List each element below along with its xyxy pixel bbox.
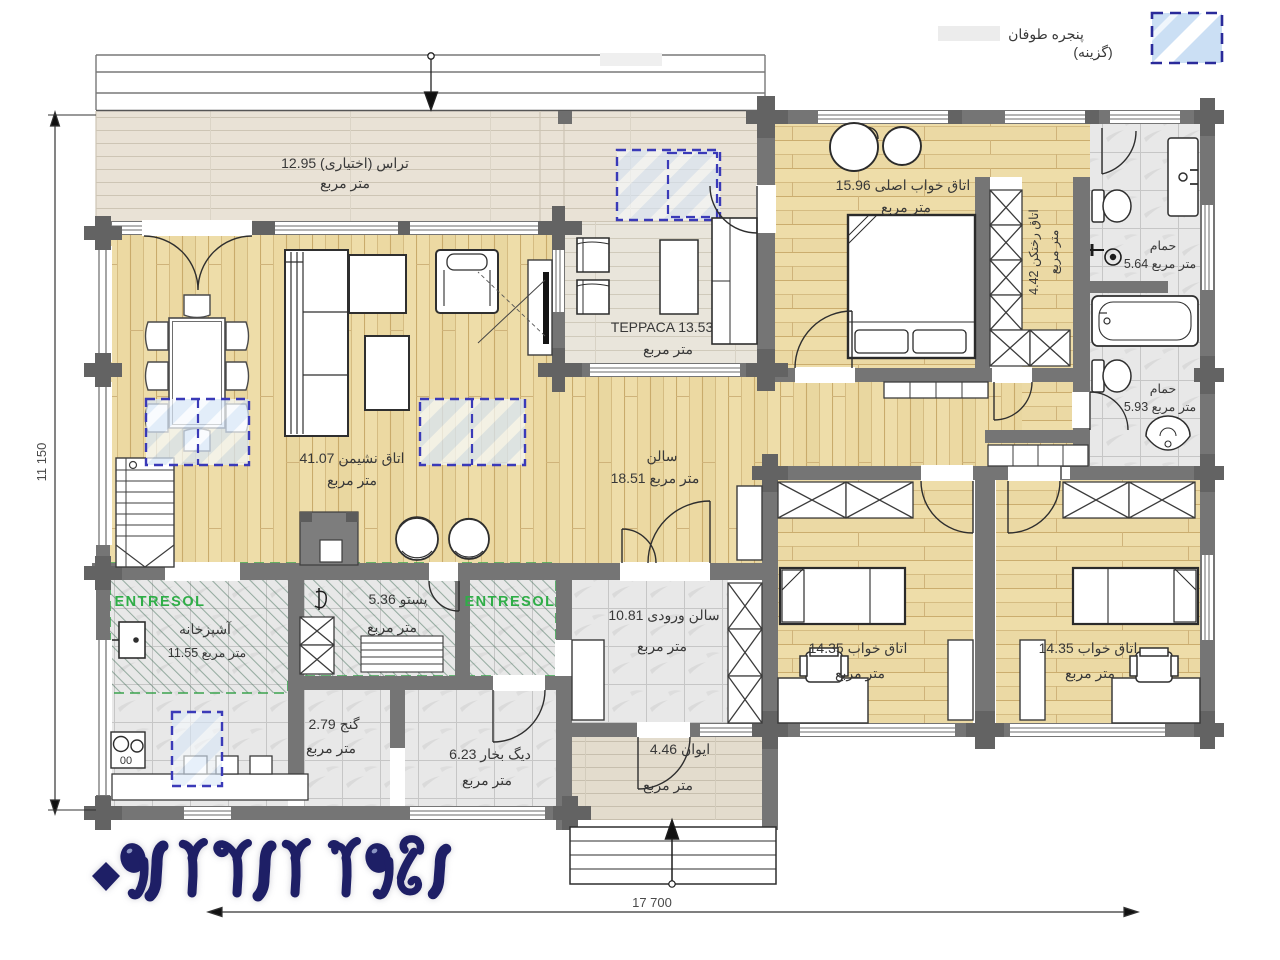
svg-text:(گزینه): (گزینه) — [1073, 44, 1112, 61]
svg-text:متر مربع: متر مربع — [1065, 665, 1115, 682]
svg-text:اتاق رختکن 4.42: اتاق رختکن 4.42 — [1027, 209, 1042, 295]
svg-text:ایوان 4.46: ایوان 4.46 — [650, 741, 710, 758]
svg-text:اتاق خواب 14.35: اتاق خواب 14.35 — [1039, 640, 1138, 657]
svg-text:متر مربع: متر مربع — [306, 740, 356, 757]
svg-text:اتاق نشیمن 41.07: اتاق نشیمن 41.07 — [299, 450, 404, 467]
svg-text:11.55 متر مربع: 11.55 متر مربع — [168, 646, 246, 661]
svg-text:متر مربع: متر مربع — [327, 472, 377, 489]
svg-text:پستو 5.36: پستو 5.36 — [369, 591, 428, 608]
svg-text:ENTRESOL: ENTRESOL — [465, 594, 556, 610]
svg-text:متر مربع: متر مربع — [1047, 230, 1062, 275]
svg-text:5.64 متر مربع: 5.64 متر مربع — [1124, 257, 1196, 272]
svg-text:00: 00 — [120, 755, 132, 767]
svg-text:11 150: 11 150 — [34, 443, 49, 482]
svg-text:متر مربع: متر مربع — [643, 341, 693, 358]
svg-text:تراس (اختیاری) 12.95: تراس (اختیاری) 12.95 — [281, 155, 409, 172]
svg-text:5.93 متر مربع: 5.93 متر مربع — [1124, 400, 1196, 415]
svg-text:دیگ بخار 6.23: دیگ بخار 6.23 — [449, 746, 531, 763]
svg-text:TEPPACA 13.53: TEPPACA 13.53 — [611, 319, 714, 335]
svg-text:گنج 2.79: گنج 2.79 — [308, 716, 359, 733]
svg-text:ENTRESOL: ENTRESOL — [115, 594, 206, 610]
svg-text:اتاق خواب اصلی 15.96: اتاق خواب اصلی 15.96 — [836, 177, 971, 194]
svg-text:حمام: حمام — [1150, 382, 1177, 397]
svg-text:متر مربع: متر مربع — [835, 665, 885, 682]
svg-text:پنجره طوفان: پنجره طوفان — [1008, 26, 1084, 43]
svg-text:متر مربع: متر مربع — [637, 638, 687, 655]
svg-text:متر مربع: متر مربع — [643, 777, 693, 794]
svg-text:18.51 متر مربع: 18.51 متر مربع — [611, 470, 700, 487]
svg-text:آشپزخانه: آشپزخانه — [179, 620, 232, 638]
svg-text:متر مربع: متر مربع — [462, 772, 512, 789]
svg-text:اتاق خواب 14.35: اتاق خواب 14.35 — [809, 640, 908, 657]
svg-text:حمام: حمام — [1150, 239, 1177, 254]
svg-text:سالن ورودی 10.81: سالن ورودی 10.81 — [608, 607, 719, 624]
svg-text:متر مربع: متر مربع — [367, 619, 417, 636]
svg-text:سالن: سالن — [647, 448, 678, 465]
svg-text:17 700: 17 700 — [632, 895, 672, 910]
svg-text:متر مربع: متر مربع — [320, 175, 370, 192]
svg-text:متر مربع: متر مربع — [881, 199, 931, 216]
